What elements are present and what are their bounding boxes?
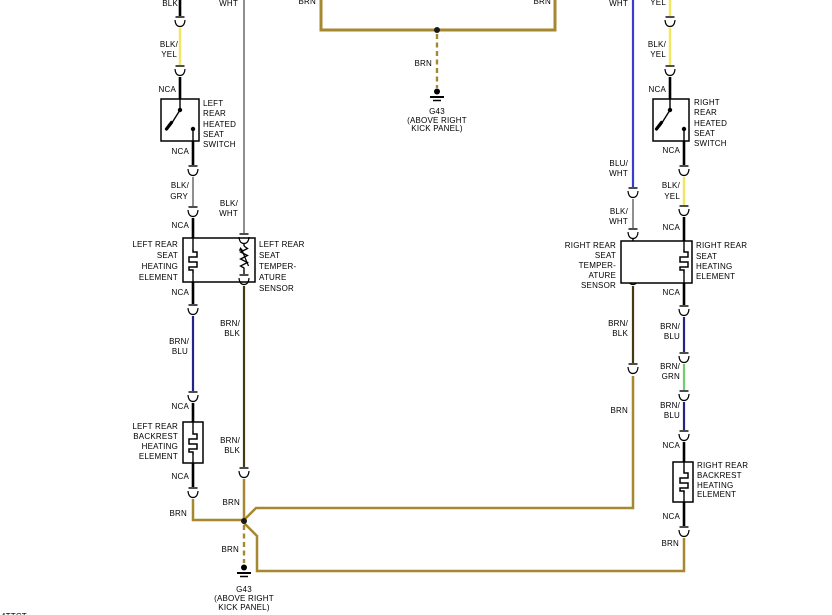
wire-label: NCA [172, 288, 190, 297]
connector-icon [679, 391, 689, 401]
component-label: SENSOR [581, 281, 616, 290]
wire-label: BRN [611, 406, 629, 415]
component-label: ELEMENT [139, 452, 178, 461]
connector-icon [665, 66, 675, 76]
top-ground-bus: BRN BRN BRN G43 (ABOVE RIGHT KICK PANEL) [299, 0, 557, 133]
wire-label: BRN/ [220, 319, 240, 328]
wire-label: BLK [162, 0, 178, 8]
wiring-diagram-page: BRN BRN BRN G43 (ABOVE RIGHT KICK PANEL)… [0, 0, 832, 615]
right-sensor-wiring: WHT BLU/ WHT BLK/ WHT BRN/ BLK BRN [608, 0, 638, 415]
wire-label: WHT [219, 0, 238, 8]
component-label: LEFT REAR [132, 422, 178, 431]
ground-icon [237, 565, 251, 577]
component-label: SEAT [595, 251, 616, 260]
component-label: HEATING [142, 442, 178, 451]
connector-icon [188, 207, 198, 217]
wire-label: BRN [170, 509, 188, 518]
left-seat-heating-element-and-sensor: LEFT REAR SEAT HEATING ELEMENT LEFT REAR… [132, 238, 304, 293]
wire-label: BRN [534, 0, 552, 6]
component-label: HEATING [696, 262, 732, 271]
wire-label: BLK [224, 329, 240, 338]
wire-label: YEL [664, 192, 680, 201]
component-label: SEAT [696, 252, 717, 261]
wire-label: YEL [650, 50, 666, 59]
wire-label: NCA [172, 472, 190, 481]
wiring-diagram-canvas: BRN BRN BRN G43 (ABOVE RIGHT KICK PANEL)… [0, 0, 832, 615]
ground-location: KICK PANEL) [411, 124, 463, 133]
junction-dot [434, 27, 440, 33]
wire-label: NCA [663, 223, 681, 232]
wire-label: BRN [662, 539, 680, 548]
component-label: SWITCH [203, 140, 236, 149]
wire-label: BLK/ [610, 207, 629, 216]
connector-icon [628, 364, 638, 374]
wire-label: NCA [172, 147, 190, 156]
component-label: HEATED [203, 120, 236, 129]
wire-label: GRY [170, 192, 188, 201]
wire-label: BRN [222, 545, 240, 554]
component-label: HEATED [694, 119, 727, 128]
wire-label: WHT [609, 0, 628, 8]
component-label: RIGHT REAR [565, 241, 616, 250]
component-label: LEFT REAR [259, 240, 305, 249]
component-label: ELEMENT [696, 272, 735, 281]
wire-label: BLK [224, 446, 240, 455]
connector-icon [679, 353, 689, 363]
component-label: ELEMENT [139, 273, 178, 282]
component-label: ELEMENT [697, 490, 736, 499]
wire-label: BRN/ [608, 319, 628, 328]
wire-label: NCA [663, 146, 681, 155]
wire-label: NCA [663, 441, 681, 450]
wire-label: BLK/ [171, 181, 190, 190]
wire-label: BLU/ [609, 159, 628, 168]
ground-location: KICK PANEL) [218, 603, 270, 612]
connector-icon [665, 17, 675, 27]
component-label: RIGHT REAR [696, 241, 747, 250]
wire-label: BLU [664, 332, 680, 341]
wire-label: BLK/ [160, 40, 179, 49]
component-label: SEAT [259, 251, 280, 260]
ground-location: (ABOVE RIGHT [214, 594, 274, 603]
connector-icon [239, 468, 249, 478]
connector-icon [679, 166, 689, 176]
wire-label: BRN [223, 498, 241, 507]
wire-label: BLK/ [648, 40, 667, 49]
wire-label: BRN/ [169, 337, 189, 346]
component-label: TEMPER- [259, 262, 297, 271]
wire-label: BRN [415, 59, 433, 68]
junction-dot [241, 518, 247, 524]
component-label: SWITCH [694, 139, 727, 148]
right-backrest-box [673, 462, 693, 502]
wire-label: NCA [649, 85, 667, 94]
component-label: SENSOR [259, 284, 294, 293]
component-label: ATURE [259, 273, 287, 282]
component-label: LEFT REAR [132, 240, 178, 249]
component-label: SEAT [694, 129, 715, 138]
wire-label: BLU [172, 347, 188, 356]
connector-icon [188, 166, 198, 176]
component-label: LEFT [203, 99, 223, 108]
wire-label: BLU [664, 411, 680, 420]
connector-icon [679, 527, 689, 537]
component-label: HEATING [142, 262, 178, 271]
wire-label: NCA [159, 85, 177, 94]
right-seat-heating-element-and-sensor: RIGHT REAR SEAT TEMPER- ATURE SENSOR RIG… [565, 241, 747, 290]
connector-icon [679, 306, 689, 316]
wire-label: NCA [663, 512, 681, 521]
wire-label: YEL [161, 50, 177, 59]
connector-icon [175, 17, 185, 27]
connector-icon [188, 392, 198, 402]
connector-icon [628, 188, 638, 198]
component-label: RIGHT [694, 98, 720, 107]
connector-icon [175, 66, 185, 76]
wire-label: GRN [662, 372, 680, 381]
component-label: HEATING [697, 481, 733, 490]
right-rear-heated-seat-switch-circuit: YEL BLK/ YEL NCA RIGHT REAR HEATED SEAT … [648, 0, 727, 241]
wire-label: BRN [299, 0, 317, 6]
left-backrest-heating-element-circuit: NCA BRN/ BLU NCA LEFT REAR BACKREST HEAT… [132, 282, 242, 520]
ground-name: G43 [429, 107, 445, 116]
connector-icon [188, 488, 198, 498]
wire-label: WHT [219, 209, 238, 218]
wire-label: NCA [172, 402, 190, 411]
connector-icon [188, 305, 198, 315]
component-label: BACKREST [133, 432, 178, 441]
wire-label: BLK/ [662, 181, 681, 190]
connector-icon [628, 229, 638, 239]
component-label: SEAT [203, 130, 224, 139]
component-label: REAR [203, 109, 226, 118]
right-backrest-heating-element-circuit: NCA BRN/ BLU BRN/ GRN BRN/ BLU NCA RIGHT… [660, 283, 748, 548]
wire-label: BRN/ [660, 362, 680, 371]
component-label: SEAT [157, 251, 178, 260]
component-label: TEMPER- [579, 261, 617, 270]
wire-label: BLK [612, 329, 628, 338]
connector-icon [679, 206, 689, 216]
connector-icon [679, 431, 689, 441]
component-label: BACKREST [697, 471, 742, 480]
wire-label: WHT [609, 169, 628, 178]
ground-icon [430, 89, 444, 101]
wire-label: NCA [663, 288, 681, 297]
wire-label: BRN/ [220, 436, 240, 445]
component-label: RIGHT REAR [697, 461, 748, 470]
wire-label: BLK/ [220, 199, 239, 208]
component-label: REAR [694, 108, 717, 117]
wire-label: BRN/ [660, 401, 680, 410]
ground-name: G43 [236, 585, 252, 594]
wire-label: YEL [650, 0, 666, 7]
wire-label: WHT [609, 217, 628, 226]
wire-label: NCA [172, 221, 190, 230]
wire-label: BRN/ [660, 322, 680, 331]
component-label: ATURE [588, 271, 616, 280]
